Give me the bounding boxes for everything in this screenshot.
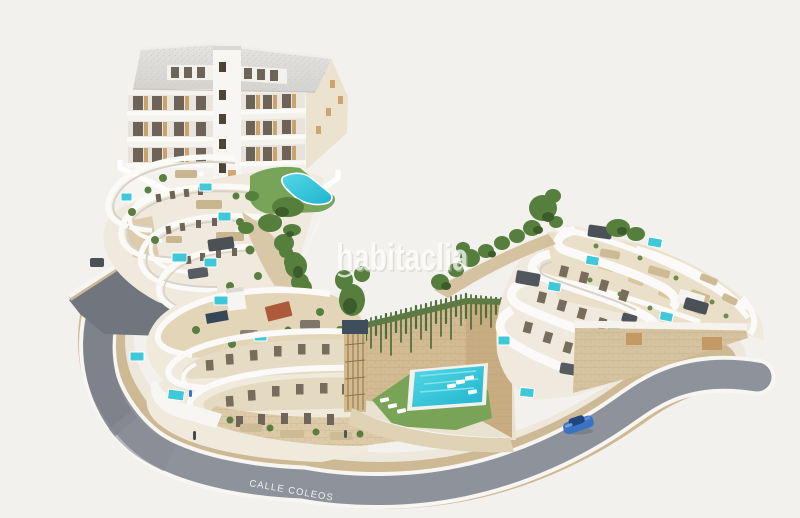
svg-text:habitaclia: habitaclia <box>336 237 469 279</box>
